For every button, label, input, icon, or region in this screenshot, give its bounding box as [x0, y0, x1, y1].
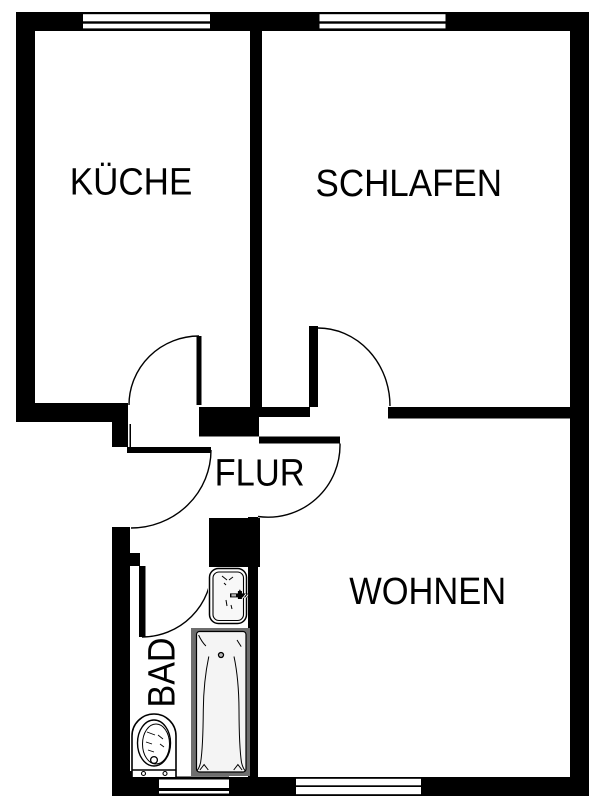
svg-text:BAD: BAD [142, 638, 184, 708]
svg-text:KÜCHE: KÜCHE [70, 162, 193, 204]
svg-text:FLUR: FLUR [215, 453, 305, 495]
svg-text:WOHNEN: WOHNEN [349, 571, 506, 613]
svg-text:SCHLAFEN: SCHLAFEN [316, 163, 503, 205]
